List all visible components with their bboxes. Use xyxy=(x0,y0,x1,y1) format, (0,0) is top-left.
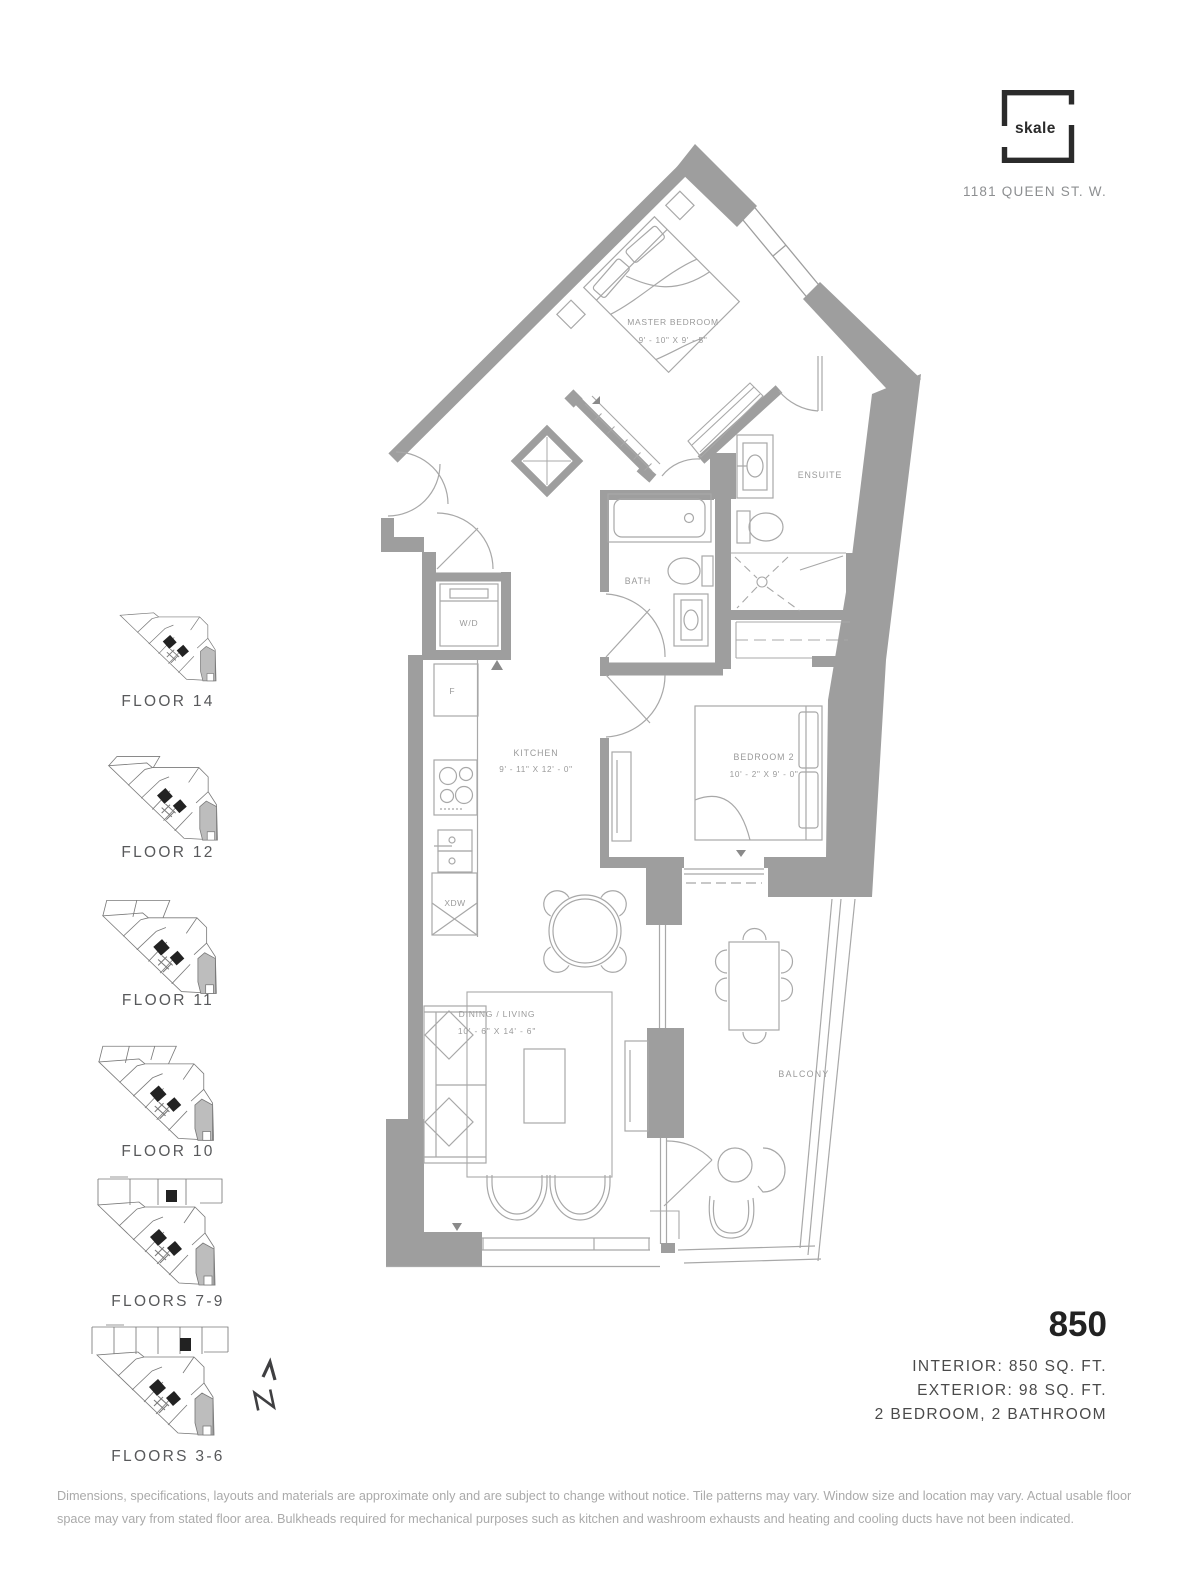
svg-text:FLOOR 11: FLOOR 11 xyxy=(122,992,214,1009)
svg-text:ENSUITE: ENSUITE xyxy=(798,470,842,480)
svg-text:DINING / LIVING: DINING / LIVING xyxy=(459,1009,536,1019)
svg-text:FLOOR 10: FLOOR 10 xyxy=(121,1143,214,1160)
svg-text:2 BEDROOM, 2 BATHROOM: 2 BEDROOM, 2 BATHROOM xyxy=(875,1406,1107,1423)
svg-text:skale: skale xyxy=(1015,120,1056,137)
svg-text:FLOORS 3-6: FLOORS 3-6 xyxy=(111,1448,224,1465)
svg-text:F: F xyxy=(449,686,454,696)
svg-text:FLOORS 7-9: FLOORS 7-9 xyxy=(111,1293,224,1310)
svg-text:W/D: W/D xyxy=(460,618,479,628)
svg-text:FLOOR 14: FLOOR 14 xyxy=(121,693,214,710)
svg-text:9' - 10" X 9' - 5": 9' - 10" X 9' - 5" xyxy=(639,336,708,345)
svg-text:XDW: XDW xyxy=(444,898,465,908)
svg-text:1181 QUEEN ST. W.: 1181 QUEEN ST. W. xyxy=(963,184,1107,199)
svg-text:Dimensions, specifications, la: Dimensions, specifications, layouts and … xyxy=(57,1489,1132,1503)
svg-text:BEDROOM 2: BEDROOM 2 xyxy=(734,752,795,762)
svg-text:INTERIOR: 850 SQ. FT.: INTERIOR: 850 SQ. FT. xyxy=(912,1358,1107,1375)
svg-text:10' - 2" X 9' - 0": 10' - 2" X 9' - 0" xyxy=(730,770,799,779)
svg-text:EXTERIOR: 98 SQ. FT.: EXTERIOR: 98 SQ. FT. xyxy=(917,1382,1107,1399)
svg-text:10' - 6" X 14' - 6": 10' - 6" X 14' - 6" xyxy=(458,1026,536,1036)
svg-text:FLOOR 12: FLOOR 12 xyxy=(121,844,214,861)
svg-text:850: 850 xyxy=(1049,1305,1107,1344)
svg-text:BALCONY: BALCONY xyxy=(778,1069,829,1079)
svg-text:KITCHEN: KITCHEN xyxy=(514,748,559,758)
svg-text:space may vary from stated flo: space may vary from stated floor area. B… xyxy=(57,1512,1074,1526)
svg-text:BATH: BATH xyxy=(625,576,651,586)
svg-text:9' - 11" X 12' - 0": 9' - 11" X 12' - 0" xyxy=(499,765,573,774)
svg-text:MASTER BEDROOM: MASTER BEDROOM xyxy=(627,317,719,327)
